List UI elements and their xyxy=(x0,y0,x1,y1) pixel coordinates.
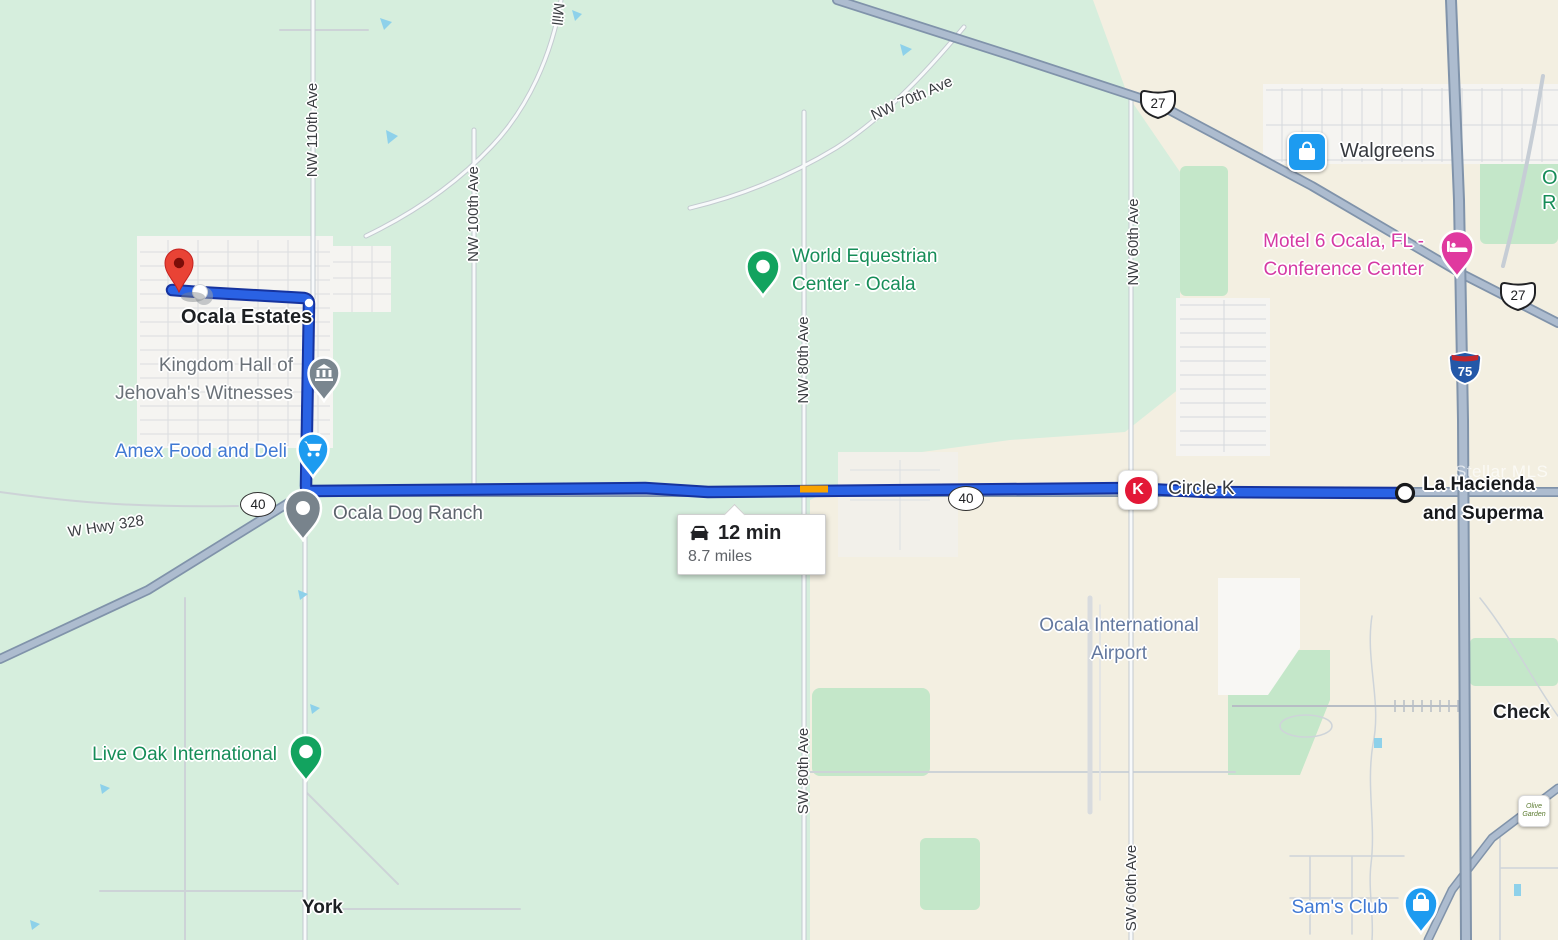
car-icon xyxy=(688,524,711,543)
place-label-ocala-international-airport[interactable]: Ocala International Airport xyxy=(1024,612,1214,668)
live-oak-international-pin[interactable] xyxy=(286,733,326,783)
place-label-la-hacienda[interactable]: La Hacienda and Superma xyxy=(1423,470,1543,528)
road-label-nw-110th-ave: NW 110th Ave xyxy=(304,83,322,178)
bed-icon xyxy=(1437,229,1477,279)
shopping-bag-icon xyxy=(1296,141,1318,163)
motel6-pin[interactable] xyxy=(1437,229,1477,279)
road-label-nw-60th-ave: NW 60th Ave xyxy=(1125,198,1143,285)
world-equestrian-center-pin[interactable] xyxy=(743,248,783,298)
route-distance: 8.7 miles xyxy=(688,548,815,566)
amex-food-deli-pin[interactable] xyxy=(294,431,332,479)
kingdom-hall-pin[interactable] xyxy=(305,355,343,403)
circle-k-pin[interactable]: K xyxy=(1118,470,1158,510)
road-label-sw-80th-ave: SW 80th Ave xyxy=(795,728,813,814)
us-27-shield: 27 xyxy=(1498,279,1538,313)
ocala-dog-ranch-pin[interactable] xyxy=(281,488,325,542)
place-label-green-partial: O R xyxy=(1542,166,1558,216)
place-label-checkers-partial[interactable]: Check xyxy=(1493,702,1550,725)
road-label-mill: Mill xyxy=(547,2,568,27)
green-dot-marker-icon xyxy=(286,733,326,783)
place-label-ocala-estates[interactable]: Ocala Estates xyxy=(181,305,312,329)
green-dot-marker-icon xyxy=(743,248,783,298)
route-duration: 12 min xyxy=(718,522,781,545)
fl-40-shield: 40 xyxy=(948,486,984,511)
map-canvas[interactable]: K Olive Garden 12 min 8.7 miles NW 110th… xyxy=(0,0,1558,940)
destination-circle xyxy=(1397,485,1414,502)
fl-40-shield: 40 xyxy=(240,492,276,517)
road-label-sw-60th-ave: SW 60th Ave xyxy=(1123,845,1141,931)
shopping-cart-icon xyxy=(294,431,332,479)
olive-garden-pin[interactable]: Olive Garden xyxy=(1518,795,1550,827)
place-label-circle-k[interactable]: Circle K xyxy=(1168,478,1235,501)
place-label-ocala-dog-ranch[interactable]: Ocala Dog Ranch xyxy=(333,503,483,526)
us-27-shield: 27 xyxy=(1138,87,1178,121)
place-label-live-oak-international[interactable]: Live Oak International xyxy=(40,744,277,767)
sams-club-pin[interactable] xyxy=(1401,885,1441,935)
place-label-amex-food-deli[interactable]: Amex Food and Deli xyxy=(57,441,287,464)
shopping-bag-icon xyxy=(1401,885,1441,935)
road-label-nw-100th-ave: NW 100th Ave xyxy=(465,166,483,262)
i-75-shield: 75 xyxy=(1445,350,1485,386)
church-building-icon xyxy=(305,355,343,403)
olive-garden-logo-icon: Olive Garden xyxy=(1522,803,1545,818)
place-label-kingdom-hall[interactable]: Kingdom Hall of Jehovah's Witnesses xyxy=(58,352,293,408)
walgreens-pin[interactable] xyxy=(1287,132,1327,172)
place-label-york: York xyxy=(302,897,343,920)
gray-dot-marker-icon xyxy=(281,488,325,542)
place-label-motel6[interactable]: Motel 6 Ocala, FL - Conference Center xyxy=(1186,228,1424,284)
route-info-tooltip[interactable]: 12 min 8.7 miles xyxy=(677,514,826,575)
circle-k-letter: K xyxy=(1132,481,1144,499)
place-label-world-equestrian-center[interactable]: World Equestrian Center - Ocala xyxy=(792,243,937,299)
place-label-sams-club[interactable]: Sam's Club xyxy=(1262,897,1388,920)
circle-k-logo-icon: K xyxy=(1125,477,1152,504)
road-label-nw-80th-ave: NW 80th Ave xyxy=(795,316,813,403)
place-label-walgreens[interactable]: Walgreens xyxy=(1340,139,1435,163)
